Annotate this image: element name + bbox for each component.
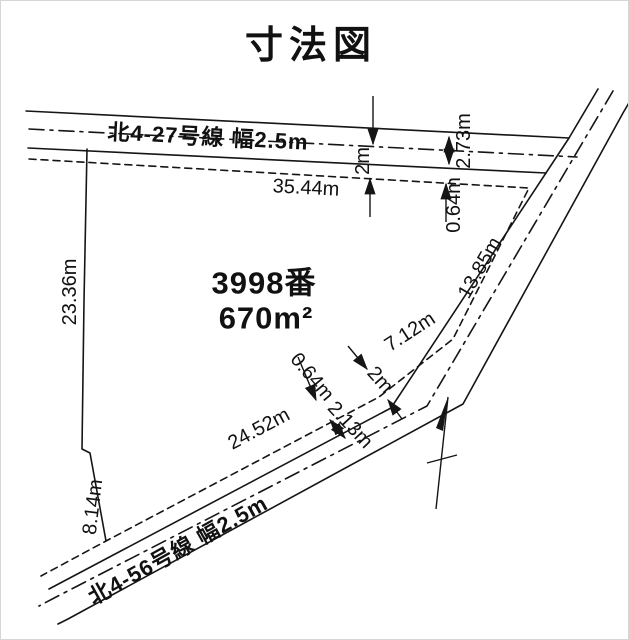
south-road-label: 北4-56号線 幅2.5m [84, 490, 272, 609]
dim-north-road-half: 2m [352, 147, 374, 175]
dim-south-boundary: 24.52m [224, 404, 293, 455]
dim-west-boundary: 23.36m [59, 259, 81, 326]
dimension-diagram-canvas: 寸法図 北4-27号線 幅2.5m 北4-56号線 幅2.5m 3998番 67… [1, 1, 629, 640]
parcel-number-label: 3998番 [212, 266, 317, 301]
road-lines [26, 89, 629, 624]
dim-north-boundary: 35.44m [272, 175, 340, 200]
north-road-label: 北4-27号線 幅2.5m [107, 119, 309, 155]
road-west-edge-line [49, 89, 598, 589]
parcel-area-label: 670m² [219, 301, 314, 336]
labels: 寸法図 北4-27号線 幅2.5m 北4-56号線 幅2.5m 3998番 67… [59, 25, 506, 610]
dim-east-boundary-upper: 13.85m [454, 234, 506, 303]
south-road-centerline [39, 91, 613, 606]
south-2m-arrow [348, 346, 367, 369]
dim-south-road-width: 2.13m [323, 397, 377, 453]
dim-south-road-half: 2m [363, 362, 398, 397]
dim-south-offset: 0.64m [286, 349, 339, 406]
survey-drawing: 寸法図 北4-27号線 幅2.5m 北4-56号線 幅2.5m 3998番 67… [0, 0, 629, 640]
dim-north-offset: 0.64m [443, 177, 465, 233]
drawing-title: 寸法図 [245, 25, 377, 67]
north-arrow-icon [427, 397, 457, 509]
road-east-edge-line [58, 101, 629, 624]
dim-north-road-width: 2.73m [453, 113, 475, 169]
